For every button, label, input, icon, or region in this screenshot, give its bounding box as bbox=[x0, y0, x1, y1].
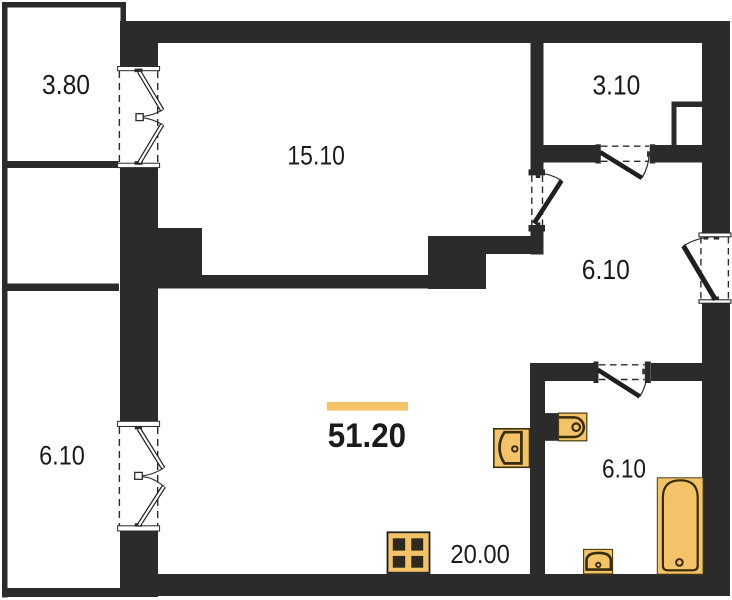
svg-text:51.20: 51.20 bbox=[328, 417, 406, 455]
svg-text:20.00: 20.00 bbox=[450, 539, 510, 569]
svg-text:3.10: 3.10 bbox=[593, 70, 641, 101]
svg-text:3.80: 3.80 bbox=[42, 69, 90, 100]
svg-text:15.10: 15.10 bbox=[287, 141, 345, 171]
svg-text:6.10: 6.10 bbox=[582, 254, 630, 285]
svg-text:6.10: 6.10 bbox=[602, 454, 646, 484]
svg-text:6.10: 6.10 bbox=[39, 441, 85, 471]
